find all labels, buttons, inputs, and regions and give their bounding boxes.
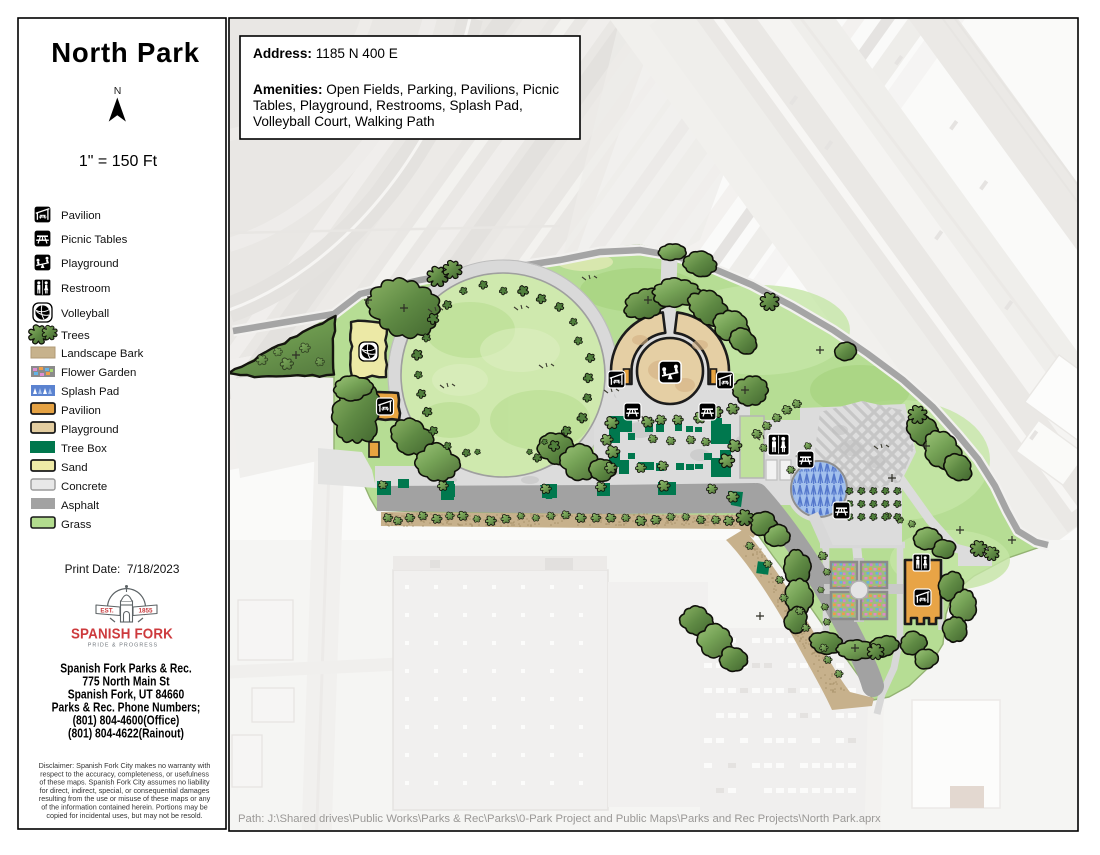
svg-text:(801) 804-4600(Office): (801) 804-4600(Office) xyxy=(73,715,180,728)
svg-text:Volleyball Court, Walking Path: Volleyball Court, Walking Path xyxy=(253,114,435,129)
svg-text:EST.: EST. xyxy=(100,608,114,615)
svg-text:775 North Main St: 775 North Main St xyxy=(82,676,169,689)
svg-text:SPANISH FORK: SPANISH FORK xyxy=(71,626,174,643)
svg-text:Landscape Bark: Landscape Bark xyxy=(61,348,144,360)
svg-text:Sand: Sand xyxy=(61,462,88,474)
svg-text:Amenities: Open Fields, Parkin: Amenities: Open Fields, Parking, Pavilio… xyxy=(253,82,559,97)
svg-text:Pavilion: Pavilion xyxy=(61,210,101,222)
svg-text:Grass: Grass xyxy=(61,519,92,531)
svg-text:Volleyball: Volleyball xyxy=(61,308,109,320)
svg-text:Restroom: Restroom xyxy=(61,283,110,295)
svg-text:PRIDE & PROGRESS: PRIDE & PROGRESS xyxy=(88,643,158,649)
svg-text:Flower Garden: Flower Garden xyxy=(61,367,136,379)
svg-text:Picnic Tables: Picnic Tables xyxy=(61,234,128,246)
svg-text:Spanish Fork Parks & Rec.: Spanish Fork Parks & Rec. xyxy=(60,663,191,676)
svg-text:Print Date: 7/18/2023: Print Date: 7/18/2023 xyxy=(65,562,180,576)
svg-text:Playground: Playground xyxy=(61,424,119,436)
svg-text:Concrete: Concrete xyxy=(61,481,107,493)
svg-text:Asphalt: Asphalt xyxy=(61,500,100,512)
svg-text:Tree Box: Tree Box xyxy=(61,443,107,455)
svg-text:Parks & Rec. Phone Numbers;: Parks & Rec. Phone Numbers; xyxy=(52,702,201,715)
svg-text:1855: 1855 xyxy=(138,608,153,615)
svg-text:Pavilion: Pavilion xyxy=(61,405,101,417)
svg-text:N: N xyxy=(114,85,122,97)
svg-text:Path: J:\Shared drives\Public: Path: J:\Shared drives\Public Works\Park… xyxy=(238,813,881,825)
svg-text:Address: 1185 N 400 E: Address: 1185 N 400 E xyxy=(253,46,398,61)
svg-text:copied for incidental uses, bu: copied for incidental uses, but may not … xyxy=(46,811,202,820)
svg-text:Splash Pad: Splash Pad xyxy=(61,386,119,398)
svg-text:Spanish Fork, UT 84660: Spanish Fork, UT 84660 xyxy=(68,689,185,702)
svg-text:(801) 804-4622(Rainout): (801) 804-4622(Rainout) xyxy=(68,728,184,741)
svg-text:Playground: Playground xyxy=(61,258,119,270)
svg-text:Trees: Trees xyxy=(61,330,90,342)
svg-text:Tables, Playground, Restrooms,: Tables, Playground, Restrooms, Splash Pa… xyxy=(253,98,523,113)
svg-text:North Park: North Park xyxy=(51,37,200,68)
svg-text:1" = 150 Ft: 1" = 150 Ft xyxy=(79,153,158,170)
